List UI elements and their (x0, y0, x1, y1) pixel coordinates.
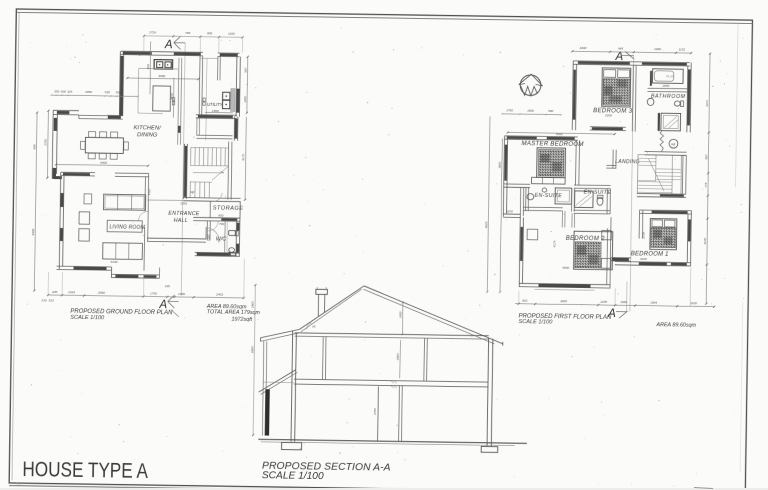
svg-text:6130: 6130 (111, 260, 118, 264)
svg-text:MASTER BEDROOM: MASTER BEDROOM (521, 140, 584, 148)
svg-text:5000: 5000 (556, 132, 563, 136)
svg-text:1918: 1918 (68, 290, 75, 294)
svg-text:2200: 2200 (604, 113, 612, 117)
svg-text:900: 900 (207, 31, 212, 35)
svg-text:W/C: W/C (216, 236, 227, 242)
svg-text:500: 500 (116, 91, 121, 95)
svg-text:4170: 4170 (552, 240, 556, 247)
svg-text:Note: Note (16, 481, 23, 485)
svg-text:BEDROOM 3: BEDROOM 3 (593, 108, 633, 115)
svg-text:3990: 3990 (98, 291, 105, 295)
svg-text:TOTAL AREA 179sqm: TOTAL AREA 179sqm (207, 309, 261, 316)
svg-text:900: 900 (704, 154, 708, 159)
svg-text:1850: 1850 (85, 90, 92, 94)
svg-text:SCALE 1/100: SCALE 1/100 (518, 319, 553, 326)
svg-text:3800: 3800 (498, 161, 502, 168)
svg-text:3800: 3800 (158, 74, 165, 78)
svg-text:799: 799 (185, 31, 190, 35)
svg-text:SCALE 1/100: SCALE 1/100 (70, 315, 105, 322)
svg-text:LIVING ROOM: LIVING ROOM (109, 225, 145, 232)
svg-text:1485: 1485 (398, 311, 402, 318)
svg-text:2403: 2403 (215, 292, 223, 296)
svg-text:500: 500 (61, 90, 66, 94)
svg-text:4000: 4000 (100, 161, 107, 165)
svg-text:5110: 5110 (147, 188, 151, 195)
svg-text:4100: 4100 (640, 257, 647, 261)
svg-text:775: 775 (704, 182, 708, 187)
svg-text:1030: 1030 (579, 46, 586, 50)
svg-text:ENTRANCE: ENTRANCE (168, 211, 200, 217)
svg-text:1200: 1200 (206, 234, 210, 241)
svg-text:KITCHEN/: KITCHEN/ (134, 125, 163, 131)
svg-text:HALL: HALL (174, 218, 188, 224)
svg-text:A: A (158, 299, 167, 311)
svg-text:325: 325 (67, 90, 72, 94)
svg-text:530: 530 (105, 90, 110, 94)
svg-text:18: 18 (312, 324, 316, 328)
svg-text:1500: 1500 (212, 109, 219, 113)
svg-text:PLUG: PLUG (666, 74, 675, 78)
svg-text:2700: 2700 (373, 408, 377, 416)
svg-text:2700: 2700 (642, 232, 646, 240)
svg-text:HB: HB (671, 142, 675, 146)
svg-text:700: 700 (219, 222, 224, 226)
svg-text:1300: 1300 (654, 47, 661, 51)
svg-text:BEDROOM 1: BEDROOM 1 (631, 251, 669, 258)
svg-text:AREA 89.60sqm: AREA 89.60sqm (655, 322, 696, 329)
svg-text:2750: 2750 (44, 139, 48, 147)
svg-text:1972sqft: 1972sqft (231, 317, 252, 323)
svg-text:945: 945 (618, 47, 623, 51)
svg-text:4500: 4500 (562, 266, 569, 270)
svg-text:810: 810 (522, 299, 527, 303)
svg-text:2729: 2729 (148, 30, 156, 34)
svg-text:1152: 1152 (679, 48, 686, 52)
svg-text:1580: 1580 (620, 300, 627, 304)
svg-text:205: 205 (51, 290, 57, 294)
svg-text:1100: 1100 (228, 32, 235, 36)
svg-text:1904: 1904 (650, 301, 657, 305)
svg-text:1400: 1400 (178, 292, 185, 296)
svg-text:500: 500 (548, 109, 553, 113)
svg-text:BATHROOM: BATHROOM (651, 94, 686, 101)
svg-text:SCALE 1/100: SCALE 1/100 (262, 470, 324, 482)
svg-text:900: 900 (218, 213, 223, 217)
svg-text:2600: 2600 (250, 301, 254, 309)
svg-text:5471: 5471 (705, 100, 709, 107)
svg-text:8565: 8565 (250, 346, 254, 353)
svg-text:DINING: DINING (137, 132, 158, 138)
svg-text:1400: 1400 (243, 96, 247, 103)
svg-text:3405: 3405 (560, 299, 567, 303)
svg-text:4500: 4500 (484, 221, 488, 228)
svg-text:A: A (164, 39, 173, 51)
svg-text:1750: 1750 (150, 291, 157, 295)
svg-text:EN-SUITE: EN-SUITE (535, 193, 563, 199)
svg-text:2060: 2060 (662, 84, 670, 88)
svg-text:295: 295 (164, 284, 170, 288)
svg-text:BEDROOM 2: BEDROOM 2 (566, 236, 606, 243)
svg-text:1250: 1250 (600, 300, 607, 304)
svg-text:2600: 2600 (396, 353, 400, 361)
svg-text:597: 597 (243, 67, 247, 72)
svg-text:1750: 1750 (506, 109, 513, 113)
svg-text:UTILITY: UTILITY (207, 102, 224, 107)
svg-text:2591: 2591 (179, 201, 187, 205)
svg-text:4175: 4175 (241, 154, 245, 161)
svg-text:STORAGE: STORAGE (213, 206, 244, 212)
svg-text:829: 829 (146, 64, 150, 69)
svg-text:up: up (191, 190, 195, 194)
svg-text:3100: 3100 (703, 238, 707, 245)
svg-text:HOUSE TYPE A: HOUSE TYPE A (22, 457, 148, 483)
svg-text:LANDING: LANDING (615, 159, 640, 165)
svg-text:210: 210 (40, 298, 46, 302)
svg-text:4630: 4630 (170, 93, 174, 100)
svg-text:310: 310 (48, 298, 53, 302)
svg-text:1150: 1150 (506, 209, 513, 213)
svg-text:1100: 1100 (690, 301, 697, 305)
svg-text:350: 350 (54, 90, 59, 94)
svg-text:5458: 5458 (31, 228, 35, 235)
svg-text:1800: 1800 (527, 109, 534, 113)
svg-text:958: 958 (32, 144, 36, 149)
